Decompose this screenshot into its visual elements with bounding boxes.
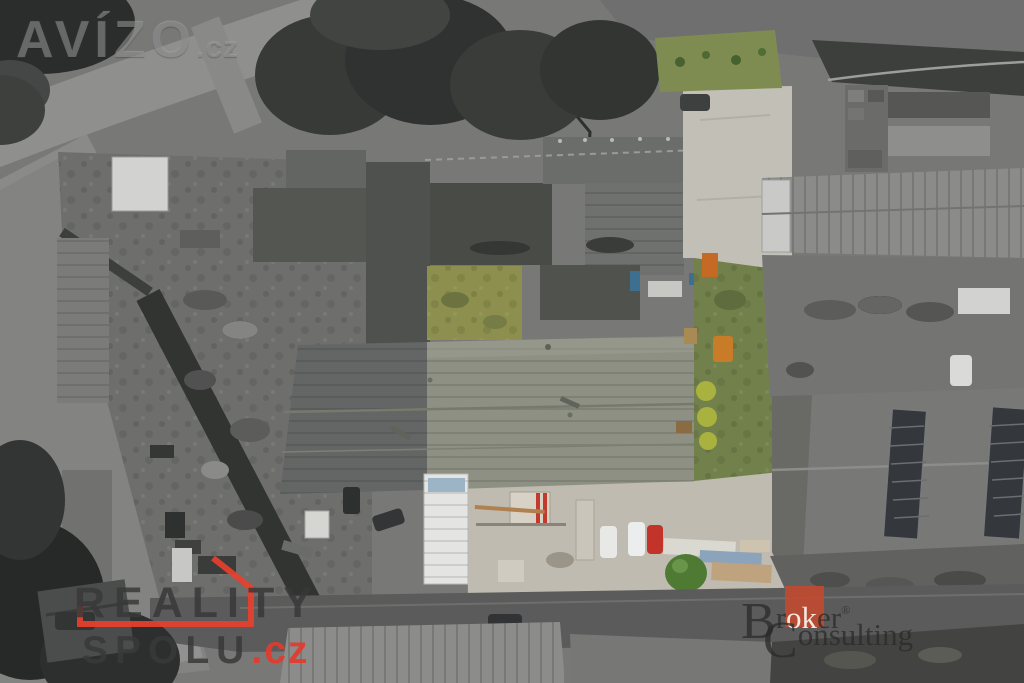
red-car <box>647 525 663 554</box>
main-hall-roof <box>280 336 694 494</box>
top-grass-strip <box>655 30 782 92</box>
white-van <box>628 522 645 556</box>
picnic-table <box>676 421 692 433</box>
reality-tld: .cz <box>251 629 309 672</box>
shrub <box>699 432 717 450</box>
white-outbuilding <box>424 474 468 584</box>
white-van <box>600 526 617 558</box>
courtyard-grass <box>427 266 522 340</box>
shrub <box>697 407 717 427</box>
reality-line2: SPOLU.cz <box>82 631 321 670</box>
reality-line1: REALITY <box>74 582 321 625</box>
orange-skip <box>702 253 718 277</box>
green-bush <box>665 554 707 592</box>
watermark-reality-spolu: REALITY SPOLU.cz <box>74 582 321 670</box>
orange-excavator <box>713 336 733 362</box>
watermark-avizo: AVÍZO.cz <box>16 10 239 70</box>
shrub <box>696 381 716 401</box>
watermark-broker-line2: Consulting <box>763 617 913 659</box>
avizo-wordmark: AVÍZO <box>16 11 196 69</box>
aerial-photo: AVÍZO.cz REALITY SPOLU.cz Broker® Consul… <box>0 0 1024 683</box>
avizo-tld: .cz <box>196 31 239 64</box>
bottom-right-hall <box>770 388 1024 600</box>
